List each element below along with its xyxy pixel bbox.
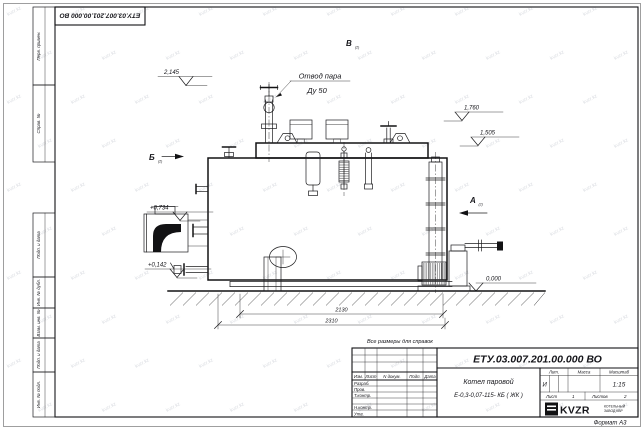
elevation-0734: +0,734 xyxy=(147,206,213,222)
flue-elbow xyxy=(144,207,208,253)
field-sprav-no: Справ. № xyxy=(36,113,41,133)
kvzr-logo-sub2: ЗАВОД КВР xyxy=(604,409,623,413)
kvzr-logo-sub1: КОТЕЛЬНЫЙ xyxy=(604,405,626,409)
lit-label: Лит. xyxy=(548,369,559,374)
ground-hatching xyxy=(170,293,545,306)
svg-text:kvzr.kz: kvzr.kz xyxy=(421,49,438,62)
sheet-label: Лист xyxy=(545,394,557,399)
svg-text:kvzr.kz: kvzr.kz xyxy=(262,181,279,194)
svg-text:kvzr.kz: kvzr.kz xyxy=(262,93,279,106)
lifting-lug-left xyxy=(277,134,297,144)
svg-text:kvzr.kz: kvzr.kz xyxy=(293,225,310,238)
svg-text:2,145: 2,145 xyxy=(163,70,180,76)
svg-text:kvzr.kz: kvzr.kz xyxy=(454,93,471,106)
field-podp-data-2: Подп. и дата xyxy=(36,341,41,369)
svg-text:kvzr.kz: kvzr.kz xyxy=(485,49,502,62)
svg-text:1,760: 1,760 xyxy=(464,106,480,112)
svg-text:kvzr.kz: kvzr.kz xyxy=(613,225,630,238)
lit-value: И xyxy=(542,383,547,389)
svg-text:kvzr.kz: kvzr.kz xyxy=(357,225,374,238)
row-prov: Пров. xyxy=(354,387,365,392)
svg-text:kvzr.kz: kvzr.kz xyxy=(326,181,343,194)
svg-text:kvzr.kz: kvzr.kz xyxy=(421,313,438,326)
svg-text:kvzr.kz: kvzr.kz xyxy=(357,313,374,326)
field-perv-primen: Перв. примен. xyxy=(36,31,41,60)
view-mark-b: Б (2) xyxy=(149,153,184,164)
dimension-2130: 2130 xyxy=(237,294,447,318)
svg-text:kvzr.kz: kvzr.kz xyxy=(613,49,630,62)
hdr-ndokum: N докум. xyxy=(383,374,400,379)
svg-text:kvzr.kz: kvzr.kz xyxy=(229,313,246,326)
svg-text:kvzr.kz: kvzr.kz xyxy=(326,93,343,106)
svg-text:(2): (2) xyxy=(355,46,359,50)
watermark-layer: kvzr.kzkvzr.kzkvzr.kzkvzr.kzkvzr.kzkvzr.… xyxy=(6,5,630,414)
view-mark-a: А (2) xyxy=(459,196,487,216)
svg-text:kvzr.kz: kvzr.kz xyxy=(229,49,246,62)
svg-text:kvzr.kz: kvzr.kz xyxy=(229,225,246,238)
reference-note: Все размеры для справок xyxy=(367,339,433,345)
svg-text:kvzr.kz: kvzr.kz xyxy=(6,269,23,282)
left-margin-fields: Перв. примен. Справ. № Подп. и дата Инв.… xyxy=(33,7,55,417)
row-tkontr: Т.контр. xyxy=(354,393,371,398)
svg-text:kvzr.kz: kvzr.kz xyxy=(390,181,407,194)
scale-label: Масштаб xyxy=(609,369,630,374)
svg-text:kvzr.kz: kvzr.kz xyxy=(229,401,246,414)
svg-text:kvzr.kz: kvzr.kz xyxy=(485,137,502,150)
svg-text:kvzr.kz: kvzr.kz xyxy=(70,357,87,370)
svg-text:kvzr.kz: kvzr.kz xyxy=(198,181,215,194)
scale-value: 1:15 xyxy=(613,382,626,389)
svg-text:kvzr.kz: kvzr.kz xyxy=(293,49,310,62)
svg-text:kvzr.kz: kvzr.kz xyxy=(485,313,502,326)
left-wall-fittings xyxy=(171,147,236,275)
drawing-canvas: kvzr.kzkvzr.kzkvzr.kzkvzr.kzkvzr.kzkvzr.… xyxy=(0,0,644,430)
top-designation-text: ЕТУ.03.007.201.00.000 ВО xyxy=(59,12,141,19)
svg-text:2310: 2310 xyxy=(324,319,338,325)
sheets-num: 2 xyxy=(623,394,627,399)
svg-text:kvzr.kz: kvzr.kz xyxy=(518,181,535,194)
svg-text:+0,734: +0,734 xyxy=(150,206,169,212)
field-vzam-inv: Взам. инв. № xyxy=(36,309,41,336)
svg-text:kvzr.kz: kvzr.kz xyxy=(421,401,438,414)
svg-text:kvzr.kz: kvzr.kz xyxy=(454,181,471,194)
svg-text:kvzr.kz: kvzr.kz xyxy=(390,93,407,106)
svg-text:kvzr.kz: kvzr.kz xyxy=(613,313,630,326)
svg-text:kvzr.kz: kvzr.kz xyxy=(101,49,118,62)
svg-text:kvzr.kz: kvzr.kz xyxy=(37,137,54,150)
svg-text:+0,142: +0,142 xyxy=(148,263,167,269)
svg-text:kvzr.kz: kvzr.kz xyxy=(165,401,182,414)
svg-text:kvzr.kz: kvzr.kz xyxy=(6,357,23,370)
product-name-1: Котел паровой xyxy=(463,378,513,386)
svg-text:0,000: 0,000 xyxy=(486,277,502,283)
row-utv: Утв. xyxy=(354,412,364,417)
drawing-sheet: kvzr.kzkvzr.kzkvzr.kzkvzr.kzkvzr.kzkvzr.… xyxy=(0,0,644,430)
svg-text:kvzr.kz: kvzr.kz xyxy=(582,93,599,106)
svg-text:kvzr.kz: kvzr.kz xyxy=(101,313,118,326)
elevation-2145: 2,145 xyxy=(158,70,212,86)
company-logo: KVZR КОТЕЛЬНЫЙ ЗАВОД КВР xyxy=(545,403,626,417)
hdr-izm: Изм. xyxy=(354,374,363,379)
svg-text:kvzr.kz: kvzr.kz xyxy=(549,313,566,326)
svg-text:kvzr.kz: kvzr.kz xyxy=(613,137,630,150)
row-razrab: Разраб. xyxy=(354,381,370,386)
svg-text:kvzr.kz: kvzr.kz xyxy=(454,269,471,282)
svg-text:kvzr.kz: kvzr.kz xyxy=(134,181,151,194)
feed-pump-unit xyxy=(418,240,503,291)
svg-text:kvzr.kz: kvzr.kz xyxy=(293,401,310,414)
hdr-list: Лист xyxy=(364,374,376,379)
svg-text:kvzr.kz: kvzr.kz xyxy=(582,269,599,282)
hdr-data: Дата xyxy=(423,374,436,379)
svg-text:kvzr.kz: kvzr.kz xyxy=(198,93,215,106)
svg-text:kvzr.kz: kvzr.kz xyxy=(165,49,182,62)
svg-text:1,505: 1,505 xyxy=(480,131,496,137)
svg-text:(2): (2) xyxy=(479,203,483,207)
svg-text:kvzr.kz: kvzr.kz xyxy=(229,137,246,150)
svg-text:kvzr.kz: kvzr.kz xyxy=(6,5,23,18)
svg-text:kvzr.kz: kvzr.kz xyxy=(582,181,599,194)
svg-text:kvzr.kz: kvzr.kz xyxy=(70,181,87,194)
boiler-body xyxy=(208,158,447,280)
designation: ЕТУ.03.007.201.00.000 ВО xyxy=(473,354,602,366)
svg-text:kvzr.kz: kvzr.kz xyxy=(518,93,535,106)
svg-text:kvzr.kz: kvzr.kz xyxy=(6,181,23,194)
burner-blower xyxy=(264,247,297,292)
boiler-drawing xyxy=(144,82,545,306)
svg-text:kvzr.kz: kvzr.kz xyxy=(165,313,182,326)
svg-text:kvzr.kz: kvzr.kz xyxy=(198,357,215,370)
svg-text:kvzr.kz: kvzr.kz xyxy=(518,269,535,282)
sheet-num: 1 xyxy=(572,394,575,399)
svg-text:kvzr.kz: kvzr.kz xyxy=(101,401,118,414)
svg-text:kvzr.kz: kvzr.kz xyxy=(485,225,502,238)
kvzr-logo-text: KVZR xyxy=(560,405,590,417)
svg-text:kvzr.kz: kvzr.kz xyxy=(134,357,151,370)
svg-text:kvzr.kz: kvzr.kz xyxy=(357,49,374,62)
top-designation-stamp: ЕТУ.03.007.201.00.000 ВО xyxy=(55,7,145,25)
callout-steam-line2: Ду 50 xyxy=(306,86,327,95)
field-podp-data-1: Подп. и дата xyxy=(36,231,41,259)
hand-valve xyxy=(381,122,396,144)
svg-text:Б: Б xyxy=(149,153,155,162)
svg-text:kvzr.kz: kvzr.kz xyxy=(262,357,279,370)
svg-text:kvzr.kz: kvzr.kz xyxy=(101,225,118,238)
svg-text:kvzr.kz: kvzr.kz xyxy=(70,93,87,106)
row-nkontr: Н.контр. xyxy=(354,405,372,410)
format-note: Формат А3 xyxy=(594,421,627,427)
svg-text:kvzr.kz: kvzr.kz xyxy=(134,269,151,282)
svg-text:kvzr.kz: kvzr.kz xyxy=(293,313,310,326)
svg-text:kvzr.kz: kvzr.kz xyxy=(326,357,343,370)
svg-text:А: А xyxy=(469,196,476,205)
field-inv-podl: Инв. № подл. xyxy=(36,381,41,408)
elevation-1760: 1,760 xyxy=(444,106,503,122)
hdr-podp: Подп. xyxy=(409,374,420,379)
svg-text:kvzr.kz: kvzr.kz xyxy=(549,49,566,62)
safety-valve-box-2 xyxy=(326,120,348,139)
svg-text:kvzr.kz: kvzr.kz xyxy=(6,93,23,106)
svg-text:2130: 2130 xyxy=(334,308,348,314)
svg-text:kvzr.kz: kvzr.kz xyxy=(70,269,87,282)
view-mark-v: В (2) xyxy=(346,39,359,50)
svg-text:kvzr.kz: kvzr.kz xyxy=(549,137,566,150)
svg-text:В: В xyxy=(346,39,352,48)
svg-text:kvzr.kz: kvzr.kz xyxy=(549,225,566,238)
svg-text:(2): (2) xyxy=(158,160,162,164)
svg-text:kvzr.kz: kvzr.kz xyxy=(485,401,502,414)
svg-text:kvzr.kz: kvzr.kz xyxy=(390,357,407,370)
callout-steam-line1: Отвод пара xyxy=(299,72,342,81)
info-grid: Лит. Масса Масштаб И 1:15 Лист 1 Листов … xyxy=(540,368,638,400)
field-inv-dubl: Инв. № дубл. xyxy=(36,279,41,306)
mass-label: Масса xyxy=(578,369,591,374)
svg-text:kvzr.kz: kvzr.kz xyxy=(101,137,118,150)
dimension-2310: 2310 xyxy=(215,294,449,329)
svg-text:kvzr.kz: kvzr.kz xyxy=(165,137,182,150)
sheets-label: Листов xyxy=(591,394,608,399)
product-name-2: Е-0,3-0,07-115- КБ ( ЖК ) xyxy=(454,393,523,399)
svg-text:kvzr.kz: kvzr.kz xyxy=(134,93,151,106)
